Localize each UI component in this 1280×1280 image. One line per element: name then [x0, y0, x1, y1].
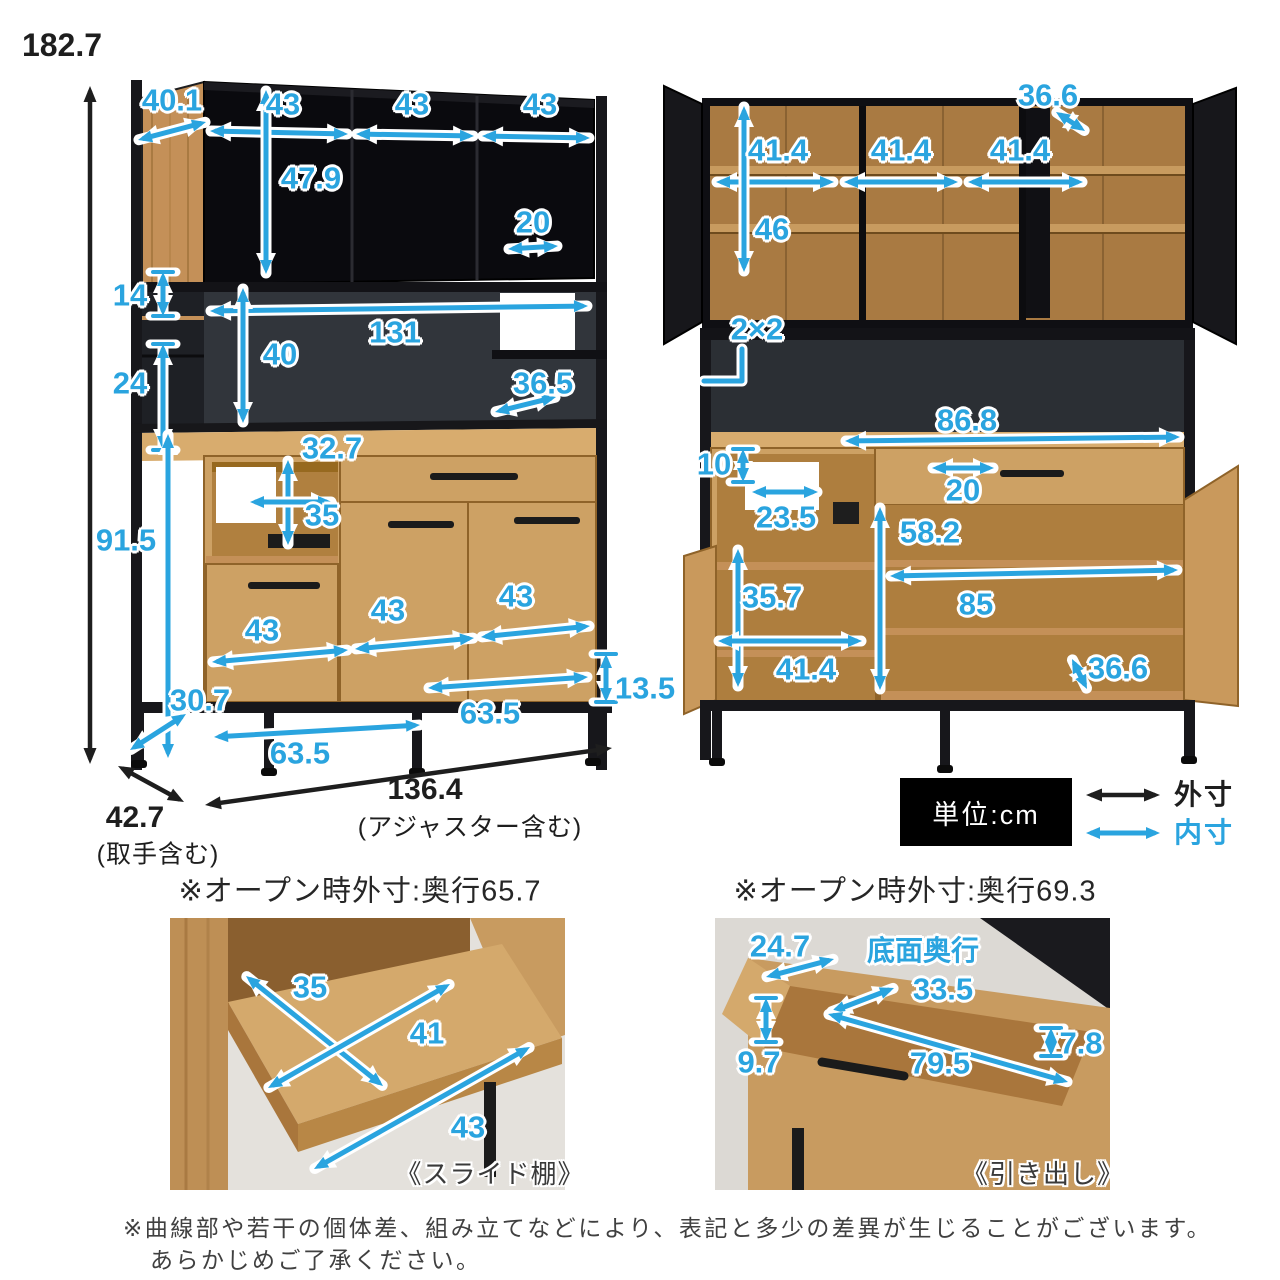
- dim-counter-depth: 36.5: [513, 368, 573, 399]
- dim-cavity-w: 85: [959, 589, 993, 620]
- dim-base-span-left: 63.5: [270, 738, 330, 769]
- dim-mid-gap-h: 14: [113, 280, 147, 311]
- photo-right-caption: 《引き出し》: [962, 1161, 1124, 1187]
- dim-leg-h: 13.5: [615, 673, 675, 704]
- dim-depth: 42.7: [106, 803, 164, 833]
- dim-left-cavity-w: 41.4: [776, 654, 836, 685]
- dim-low-w1: 43: [245, 615, 279, 646]
- note-line1: ※曲線部や若干の個体差、組み立てなどにより、表記と多少の差異が生じることがござい…: [123, 1214, 1212, 1244]
- dim-mid-inner-w: 131: [369, 317, 421, 348]
- dim-top-inner-h: 47.9: [281, 163, 341, 194]
- dim-lower-h: 91.5: [96, 525, 156, 556]
- dim-shelf-inner: 41: [410, 1018, 444, 1049]
- dim-bottom-depth: 33.5: [913, 974, 973, 1005]
- dim-low-w3: 43: [499, 581, 533, 612]
- dim-niche-upper-h: 32.7: [302, 433, 362, 464]
- dim-bottom-depth-label: 底面奥行: [867, 937, 979, 965]
- dim-top-inner-w2: 41.4: [871, 135, 931, 166]
- dim-top-door-depth: 36.6: [1018, 80, 1078, 111]
- dim-top-w2: 43: [395, 89, 429, 120]
- dim-overall-height: 182.7: [22, 29, 102, 61]
- dim-drawer-inner-w: 79.5: [910, 1048, 970, 1079]
- dim-top-inner-w1: 41.4: [748, 135, 808, 166]
- dim-mid-left-h: 24: [113, 368, 147, 399]
- dimension-diagram: 182.7 40.1 43 43 43 47.9 20 14 131 40 24…: [0, 0, 1280, 1280]
- photo-slide-shelf: [170, 918, 565, 1190]
- legend-inner-label: 内寸: [1174, 819, 1234, 847]
- dim-width: 136.4: [387, 775, 462, 805]
- dim-drawer-inner-h: 9.7: [737, 1047, 780, 1078]
- dim-base-span-right: 63.5: [460, 698, 520, 729]
- cabinet-illustrations: [0, 0, 1280, 1280]
- unit-label: 単位:cm: [932, 793, 1040, 832]
- dim-width-note: (アジャスター含む): [358, 816, 582, 841]
- dim-left-cavity-h: 35.7: [742, 582, 802, 613]
- dim-door-depth: 36.6: [1088, 653, 1148, 684]
- dim-mid-inner-h: 40: [263, 339, 297, 370]
- dim-cavity-h: 58.2: [900, 517, 960, 548]
- dim-low-w2: 43: [371, 595, 405, 626]
- dim-drawer-top-depth: 24.7: [750, 931, 810, 962]
- dim-shelf-width: 43: [451, 1112, 485, 1143]
- legend-outer-label: 外寸: [1174, 781, 1234, 809]
- dim-top-depth: 40.1: [142, 85, 202, 116]
- dim-depth-note: (取手含む): [97, 843, 220, 868]
- dim-niche-lower-h: 35: [305, 500, 339, 531]
- unit-box: 単位:cm: [900, 778, 1072, 846]
- dim-base-depth: 30.7: [170, 685, 230, 716]
- dim-drawer-handle-w: 20: [946, 475, 980, 506]
- dim-outlet-h: 10: [697, 449, 731, 480]
- photo-left-caption: 《スライド棚》: [395, 1161, 584, 1187]
- dim-counter-inner-w: 86.8: [937, 405, 997, 436]
- dim-outlet-w: 23.5: [756, 502, 816, 533]
- dim-shelf-depth: 35: [293, 972, 327, 1003]
- note-line2: あらかじめご了承ください。: [150, 1246, 482, 1276]
- dim-frame-size: 2×2: [731, 314, 784, 345]
- photo-left-title: ※オープン時外寸:奥行65.7: [178, 878, 541, 907]
- dim-top-w3: 43: [523, 89, 557, 120]
- dim-top-inner-h: 46: [755, 214, 789, 245]
- left-cabinet-drawing: [131, 80, 612, 776]
- dim-top-inner-w3: 41.4: [990, 135, 1050, 166]
- dim-top-w1: 43: [266, 89, 300, 120]
- photo-right-title: ※オープン時外寸:奥行69.3: [733, 878, 1096, 907]
- dim-top-gap-w: 20: [516, 207, 550, 238]
- dim-drawer-gap-h: 7.8: [1059, 1028, 1102, 1059]
